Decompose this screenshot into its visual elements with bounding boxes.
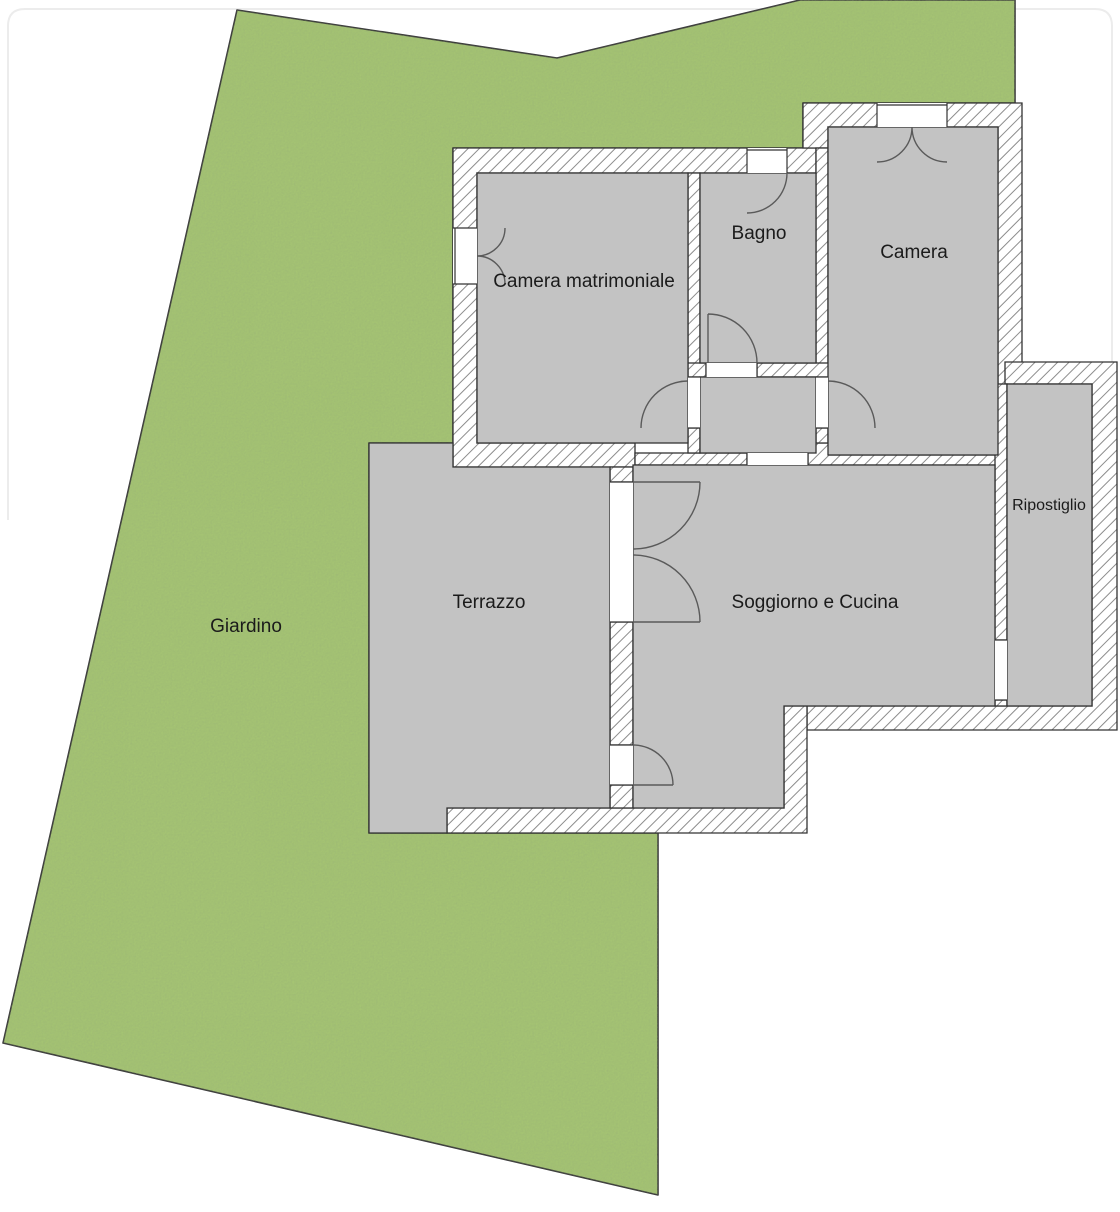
label-ripostiglio: Ripostiglio <box>1012 497 1086 514</box>
wall-terrace-seg2 <box>610 622 633 745</box>
opening-bagno-door <box>706 363 757 377</box>
opening-hall-to-cm <box>688 377 700 428</box>
room-hallway-floor <box>700 377 816 453</box>
opening-bagno-window <box>747 148 787 173</box>
wall-divider-cm-bagno <box>688 173 700 377</box>
wall-divider-hall-camera-stub <box>816 428 828 443</box>
floorplan-canvas: Giardino Camera matrimoniale Bagno Camer… <box>0 0 1120 1207</box>
wall-terrace-seg1 <box>610 467 633 482</box>
wall-divider-bagno-camera <box>816 148 828 377</box>
wall-bagno-south-a <box>688 363 706 377</box>
label-giardino: Giardino <box>210 616 282 637</box>
wall-hall-south <box>635 453 747 465</box>
wall-divider-cm-hall-stub <box>688 428 700 453</box>
room-terrazzo-floor <box>369 443 610 833</box>
room-ripostiglio-floor <box>1007 384 1092 706</box>
wall-terrace-seg3 <box>610 785 633 808</box>
room-bagno-floor <box>700 173 816 363</box>
room-camera-floor <box>828 127 998 455</box>
label-camera-matrimoniale: Camera matrimoniale <box>493 271 675 292</box>
opening-terrace-door <box>610 745 633 785</box>
opening-terrace-french-door <box>610 482 633 622</box>
floorplan-page: Giardino Camera matrimoniale Bagno Camer… <box>0 0 1120 1207</box>
room-soggiorno-floor <box>633 465 995 808</box>
label-soggiorno: Soggiorno e Cucina <box>732 592 899 613</box>
label-terrazzo: Terrazzo <box>453 592 526 613</box>
opening-camera-window <box>877 103 947 127</box>
wall-bagno-south-b <box>757 363 832 377</box>
opening-hall-to-soggiorno <box>747 453 808 465</box>
wall-soggiorno-ripostiglio-stub <box>995 700 1007 706</box>
label-bagno: Bagno <box>732 223 787 244</box>
opening-cm-window <box>453 228 477 284</box>
label-camera: Camera <box>880 242 948 263</box>
opening-hall-to-camera <box>816 377 828 428</box>
opening-soggiorno-to-ripostiglio <box>995 640 1007 700</box>
room-camera-matrimoniale-floor <box>477 173 688 443</box>
